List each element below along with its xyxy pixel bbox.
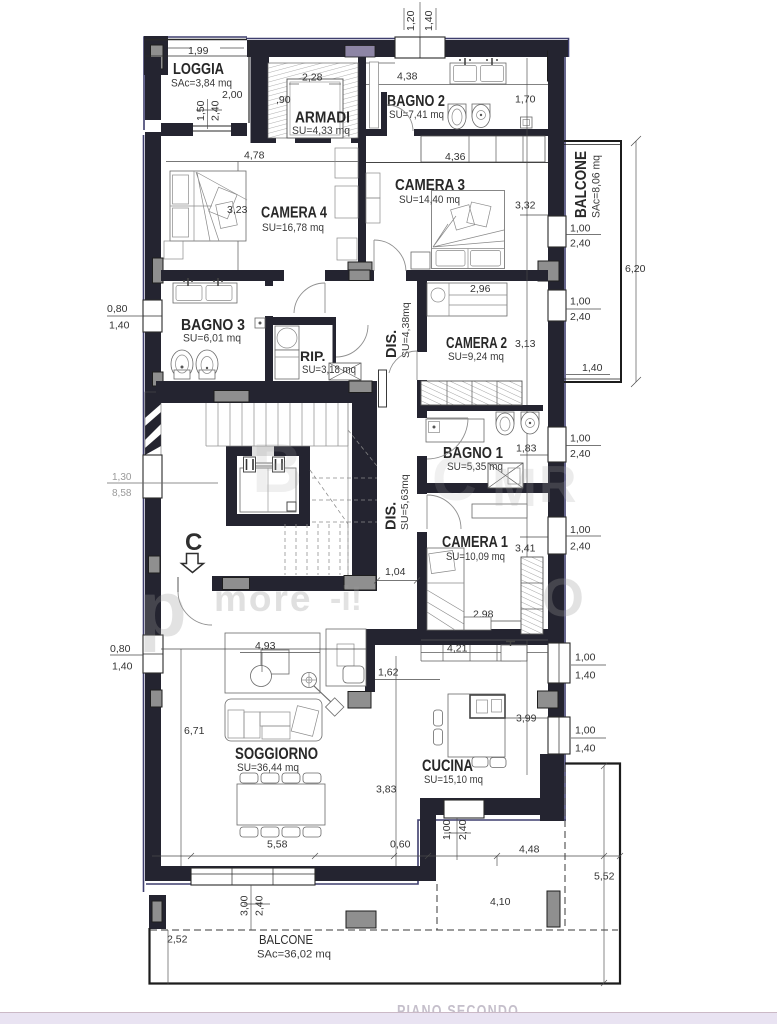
svg-text:BAGNO 2: BAGNO 2 (387, 93, 445, 110)
svg-text:1,40: 1,40 (582, 362, 603, 374)
svg-text:SU=6,01 mq: SU=6,01 mq (183, 333, 241, 345)
svg-text:p: p (139, 565, 187, 653)
svg-text:1,40: 1,40 (109, 320, 130, 332)
svg-text:3,99: 3,99 (516, 713, 537, 725)
svg-text:SAc=36,02 mq: SAc=36,02 mq (257, 949, 331, 961)
svg-text:SU=15,10 mq: SU=15,10 mq (424, 774, 483, 786)
svg-text:1,00: 1,00 (570, 296, 591, 308)
svg-text:1,00: 1,00 (575, 725, 596, 737)
svg-text:CUCINA: CUCINA (422, 757, 473, 775)
svg-text:4,10: 4,10 (490, 896, 511, 908)
svg-text:2,40: 2,40 (457, 819, 469, 840)
svg-text:SU=16,78 mq: SU=16,78 mq (262, 222, 324, 234)
svg-text:DIS.: DIS. (384, 502, 400, 530)
svg-text:3,41: 3,41 (515, 543, 536, 555)
svg-text:1,70: 1,70 (515, 94, 536, 106)
svg-text:C: C (432, 445, 477, 514)
svg-text:SU=36,44 mq: SU=36,44 mq (237, 762, 299, 774)
svg-text:BAGNO 3: BAGNO 3 (181, 317, 245, 334)
svg-text:SU=9,24 mq: SU=9,24 mq (448, 351, 504, 363)
svg-text:LOGGIA: LOGGIA (173, 61, 224, 78)
svg-text:more: more (214, 578, 312, 619)
svg-text:2,96: 2,96 (470, 283, 491, 295)
svg-text:1,40: 1,40 (575, 743, 596, 755)
svg-text:SU=14,40 mq: SU=14,40 mq (399, 194, 460, 206)
svg-text:2,40: 2,40 (570, 311, 591, 323)
svg-text:0,80: 0,80 (107, 303, 128, 315)
svg-text:C: C (185, 529, 202, 556)
svg-text:2,40: 2,40 (570, 541, 591, 553)
svg-text:1,99: 1,99 (188, 45, 209, 57)
svg-text:3,32: 3,32 (515, 200, 536, 212)
svg-text:2,00: 2,00 (222, 89, 243, 101)
svg-text:3,00: 3,00 (239, 895, 251, 916)
svg-text:4,48: 4,48 (519, 844, 540, 856)
svg-text:2,40: 2,40 (570, 238, 591, 250)
svg-text:SU=3,18 mq: SU=3,18 mq (302, 364, 356, 376)
svg-text:0,80: 0,80 (110, 643, 131, 655)
svg-text:B: B (252, 429, 303, 507)
svg-text:3,83: 3,83 (376, 784, 397, 796)
svg-text:1,40: 1,40 (112, 661, 133, 673)
svg-text:3,23: 3,23 (227, 204, 248, 216)
svg-text:4,21: 4,21 (447, 643, 468, 655)
svg-text:R: R (539, 456, 577, 514)
svg-text:2,28: 2,28 (302, 72, 323, 84)
svg-text:SU=4,33 mq: SU=4,33 mq (292, 125, 350, 137)
svg-text:1,00: 1,00 (570, 433, 591, 445)
svg-text:DIS.: DIS. (384, 330, 400, 358)
svg-text:SU=7,41 mq: SU=7,41 mq (389, 109, 444, 121)
svg-text:3,13: 3,13 (515, 338, 536, 350)
svg-text:1,50: 1,50 (195, 100, 207, 121)
svg-text:1,00: 1,00 (441, 819, 453, 840)
svg-text:ARMADI: ARMADI (295, 110, 350, 127)
svg-text:RIP.: RIP. (300, 348, 325, 364)
svg-text:,90: ,90 (276, 94, 291, 106)
svg-text:6,20: 6,20 (625, 263, 646, 275)
svg-text:5,58: 5,58 (267, 839, 288, 851)
svg-text:SAc=8,06 mq: SAc=8,06 mq (591, 155, 603, 218)
svg-text:SAc=3,84 mq: SAc=3,84 mq (171, 78, 232, 90)
svg-text:2,40: 2,40 (254, 895, 266, 916)
svg-text:0,60: 0,60 (390, 839, 411, 851)
svg-text:SU=4,38mq: SU=4,38mq (400, 302, 412, 358)
svg-text:BALCONE: BALCONE (259, 933, 313, 947)
svg-text:SU=5,63mq: SU=5,63mq (399, 474, 411, 530)
svg-text:4,78: 4,78 (244, 150, 265, 162)
svg-text:1,00: 1,00 (570, 524, 591, 536)
svg-text:O: O (542, 568, 584, 628)
svg-text:CAMERA 4: CAMERA 4 (261, 205, 327, 222)
svg-text:CAMERA 2: CAMERA 2 (446, 335, 507, 352)
svg-text:CAMERA 1: CAMERA 1 (442, 534, 508, 551)
svg-text:2,52: 2,52 (167, 934, 188, 946)
svg-text:5,52: 5,52 (594, 871, 615, 883)
svg-text:SU=10,09 mq: SU=10,09 mq (446, 551, 505, 563)
svg-text:CAMERA 3: CAMERA 3 (395, 177, 465, 194)
svg-text:-i!: -i! (330, 580, 362, 618)
svg-text:1,40: 1,40 (575, 670, 596, 682)
svg-text:2,40: 2,40 (210, 100, 222, 121)
svg-text:1,04: 1,04 (385, 566, 406, 578)
svg-text:4,38: 4,38 (397, 71, 418, 83)
svg-text:M: M (492, 458, 537, 518)
svg-text:4,93: 4,93 (255, 640, 276, 652)
svg-text:BALCONE: BALCONE (573, 151, 590, 218)
svg-text:1,20: 1,20 (405, 10, 417, 31)
svg-text:4,36: 4,36 (445, 151, 466, 163)
svg-text:SOGGIORNO: SOGGIORNO (235, 744, 318, 763)
svg-text:8,58: 8,58 (112, 488, 132, 499)
svg-text:1,62: 1,62 (378, 667, 399, 679)
svg-text:1,30: 1,30 (112, 472, 132, 483)
svg-text:1,40: 1,40 (423, 10, 435, 31)
svg-text:1,00: 1,00 (570, 223, 591, 235)
svg-text:1,83: 1,83 (516, 443, 537, 455)
svg-text:1,00: 1,00 (575, 652, 596, 664)
svg-text:6,71: 6,71 (184, 725, 205, 737)
